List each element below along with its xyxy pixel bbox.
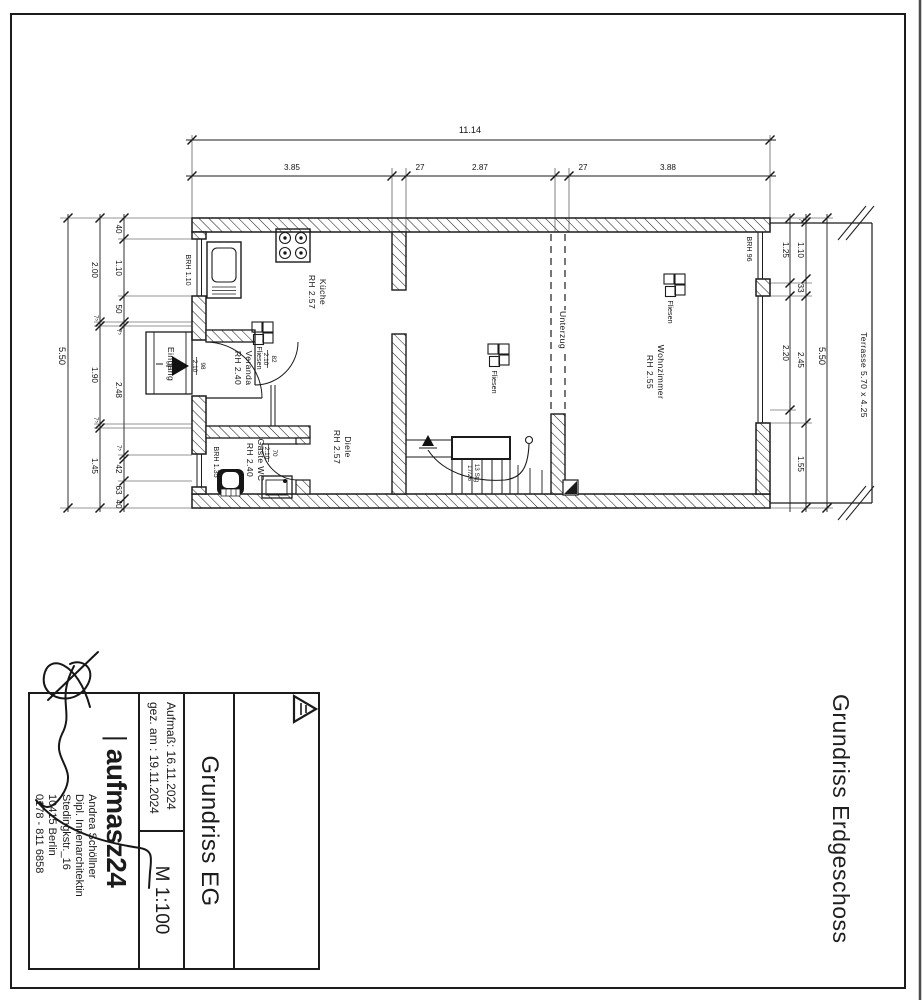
door-size-eingang: 98 2.10 <box>191 357 206 375</box>
dim-top-5: 3.88 <box>660 163 676 172</box>
dim-left-i2: 1.10 <box>114 260 123 276</box>
dim-right-i5: 1.55 <box>796 456 805 472</box>
dim-left-total: 5.50 <box>57 347 67 365</box>
contact-street: Stedingkstr._16 <box>58 794 71 968</box>
svg-text:2.10: 2.10 <box>263 447 270 460</box>
dim-top-1: 3.85 <box>284 163 300 172</box>
dim-right-i1: 7 <box>797 218 804 222</box>
brand-divider: | <box>102 735 133 742</box>
dim-right-i3: 33 <box>796 283 805 293</box>
dim-left-i8: 63 <box>114 485 123 495</box>
dim-left-i5: 2.48 <box>114 382 123 398</box>
stair-count-label: 13 Stg <box>473 464 480 483</box>
room-height-kueche: RH 2.57 <box>307 275 317 309</box>
document-title: Grundriss Erdgeschoss <box>818 694 854 952</box>
drawing-scale: M 1:100 <box>140 832 183 968</box>
tile-symbol-diele <box>488 344 509 367</box>
dim-left-i4: 7⁵ <box>115 329 122 335</box>
dim-left-i9: 40 <box>114 499 123 509</box>
terrace-label: Terrasse 5.70 x 4.25 <box>859 332 869 418</box>
room-label-wohnzimmer: Wohnzimmer <box>656 345 666 399</box>
drawn-date: gez. am : 19.11.2024 <box>144 702 161 830</box>
stair-rise-run-label: 17/26 <box>466 465 473 481</box>
svg-text:2.10: 2.10 <box>262 353 269 366</box>
extension-lines <box>60 135 833 508</box>
measured-date: Aufmaß: 16.11.2024 <box>162 702 179 830</box>
room-height-wohnzimmer: RH 2.55 <box>645 355 655 389</box>
stove <box>276 229 310 262</box>
room-height-veranda: RH 2.40 <box>233 351 243 385</box>
contact-city: 10415 Berlin <box>45 794 58 968</box>
entrance-label: Eingang <box>166 347 176 381</box>
svg-text:82: 82 <box>270 355 277 363</box>
dim-top-3: 2.87 <box>472 163 488 172</box>
tile-symbol-wohnzimmer <box>664 274 685 297</box>
svg-text:2.10: 2.10 <box>191 360 198 373</box>
drawing-dates: Aufmaß: 16.11.2024 gez. am : 19.11.2024 <box>140 694 183 832</box>
dim-total-width: 11.14 <box>459 125 481 135</box>
dim-left-i1: 40 <box>114 224 123 234</box>
dim-right-o2: 2.20 <box>781 345 790 361</box>
scanned-plan-sheet: 11.14 3.85 27 2.87 27 3.88 5.50 2.00 7⁵ … <box>0 0 923 1000</box>
room-height-diele: RH 2.57 <box>332 430 342 464</box>
dim-left-i6: 7⁵ <box>115 445 122 451</box>
dim-left-i7: 42 <box>114 464 123 474</box>
sill-label-kueche: BRH 1.10 <box>184 254 193 285</box>
kitchen-sink <box>207 242 241 298</box>
dim-left-c4: 7⁵ <box>92 417 99 423</box>
dim-left-c2: 7⁵ <box>92 315 99 321</box>
stair-walkline-start <box>526 437 533 444</box>
sill-label-wc: BRH 1.35 <box>212 446 221 477</box>
contact-role: Dipl. Innenarchitektin <box>72 794 85 968</box>
stair-direction-arrow-icon <box>422 435 434 446</box>
contact-phone: 0178 - 811 6858 <box>32 794 45 968</box>
room-label-kueche: Küche <box>318 279 328 305</box>
drawing-title: Grundriss EG <box>185 694 235 968</box>
dim-right-total: 5.50 <box>817 347 827 365</box>
sill-label-wohnzimmer: BRH 96 <box>745 236 754 261</box>
beam-label: Unterzug <box>558 311 568 349</box>
dim-left-i3: 50 <box>114 304 123 314</box>
dim-left-c1: 2.00 <box>90 262 99 278</box>
dimension-ticks <box>64 136 832 513</box>
svg-text:98: 98 <box>199 362 206 370</box>
dim-right-i4: 2.45 <box>796 352 805 368</box>
floor-label-diele: Fliesen <box>490 370 499 393</box>
svg-text:70: 70 <box>271 449 278 457</box>
chimney-symbol <box>563 480 578 495</box>
room-label-gaeste-wc: Gäste WC <box>256 439 266 482</box>
room-label-veranda: Veranda <box>244 351 254 386</box>
room-height-gaeste-wc: RH 2.40 <box>245 443 255 477</box>
room-label-diele: Diele <box>343 436 353 458</box>
title-block-empty-cell <box>235 694 318 968</box>
contact-block: Andrea Schöllner Dipl. Innenarchitektin … <box>32 794 98 968</box>
dim-left-c5: 1.45 <box>90 458 99 474</box>
brand-name: aufmasz24 <box>100 749 132 888</box>
dim-right-o1: 1.25 <box>781 242 790 258</box>
title-block: Grundriss EG Aufmaß: 16.11.2024 gez. am … <box>28 692 320 970</box>
dim-left-c3: 1.90 <box>90 367 99 383</box>
dim-top-2: 27 <box>415 163 425 172</box>
dim-top-4: 27 <box>578 163 588 172</box>
dim-right-i2: 1.10 <box>796 242 805 258</box>
contact-name: Andrea Schöllner <box>85 794 98 968</box>
floor-label-wohnzimmer: Fliesen <box>666 300 675 323</box>
